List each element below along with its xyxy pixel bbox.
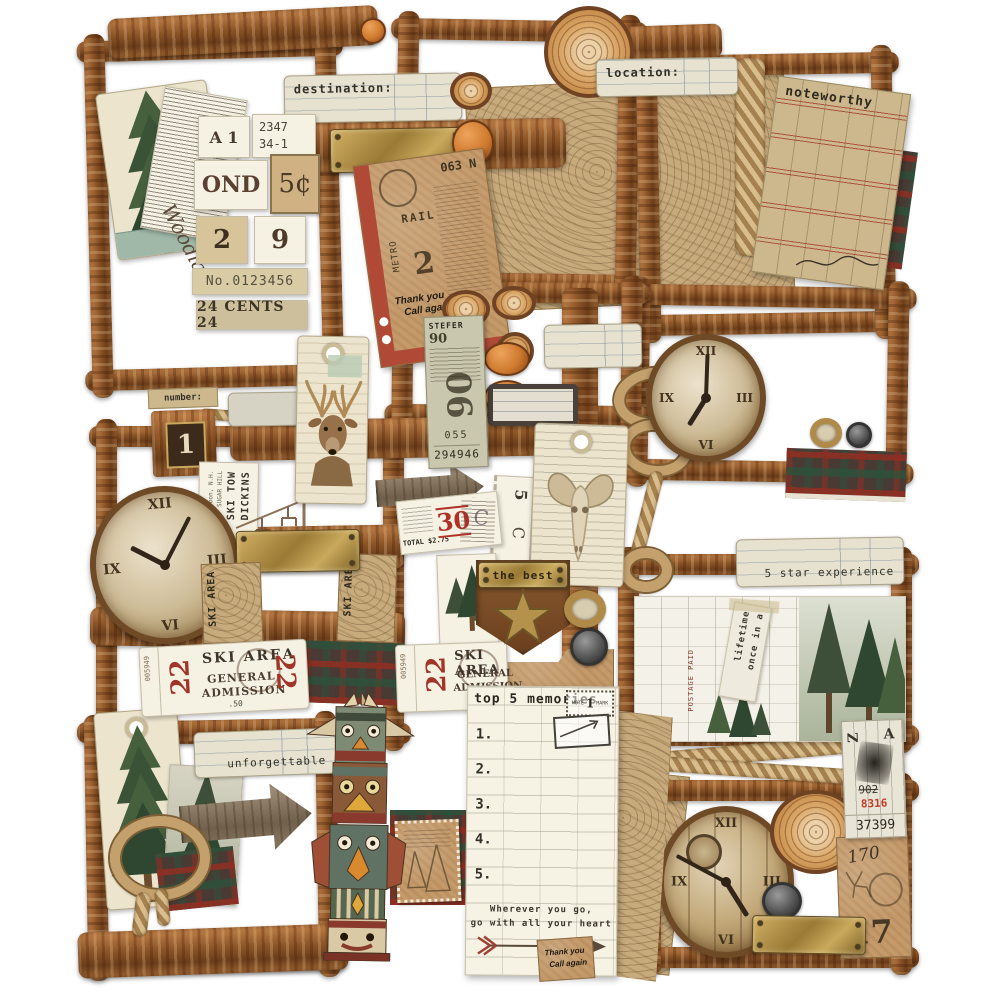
collage-canvas: Woodland A 1 2347 34-1 OND 5¢ 2 9 No.012… bbox=[0, 0, 1000, 1000]
blank-label-center bbox=[544, 323, 643, 369]
brass-plate-bottom-right bbox=[752, 915, 867, 955]
clock-left-numeral-6: VI bbox=[161, 617, 180, 634]
mini-thanks-line1: Thank you bbox=[544, 946, 585, 958]
stefer-big-number: 90 bbox=[440, 370, 482, 419]
brass-grommet bbox=[564, 590, 606, 628]
memo-row-4: 4. bbox=[475, 831, 492, 847]
five-cents-text: 5¢ bbox=[278, 169, 311, 199]
ski-price: .50 bbox=[228, 699, 243, 709]
wood-slice-small bbox=[450, 72, 492, 110]
stamp-a1: A 1 bbox=[198, 116, 250, 158]
memo-row-3: 3. bbox=[475, 796, 492, 812]
za-ink-blot bbox=[855, 741, 894, 785]
strip-5: 5 bbox=[511, 489, 531, 501]
ski2-22: 22 bbox=[421, 656, 452, 693]
signature-squiggle bbox=[790, 244, 883, 282]
za-serial: 37399 bbox=[845, 813, 906, 834]
numeral-left-text: 2 bbox=[213, 225, 231, 255]
clock-br-numeral-12: XII bbox=[715, 816, 737, 831]
deer-tag bbox=[295, 335, 370, 504]
stefer-sub: 90 bbox=[429, 331, 448, 347]
za-red-num: 8316 bbox=[861, 797, 888, 811]
stamp-ond-text: OND bbox=[202, 172, 260, 198]
clock-br-center-pin bbox=[721, 877, 731, 887]
ski-serial-left: 005949 bbox=[143, 656, 152, 682]
calendar-30-ticket: TOTAL $2.75 30 C bbox=[395, 491, 502, 555]
thank-you-mini-ticket: Thank you Call again bbox=[537, 936, 596, 982]
noteworthy-ledger-card: noteworthy bbox=[751, 76, 911, 291]
memo-quote-line2: go with all your heart bbox=[466, 918, 616, 929]
five-star-text: 5 star experience bbox=[764, 565, 894, 580]
memo-row-1: 1. bbox=[476, 726, 493, 742]
wood-knob-pair-top bbox=[484, 342, 530, 376]
mini-thanks-line2: Call again bbox=[549, 958, 587, 970]
clock-middle: XII III VI IX bbox=[646, 334, 766, 462]
ski-22-left: 22 bbox=[165, 658, 197, 696]
brass-star-icon bbox=[493, 588, 553, 646]
stamp-numeral-left: 2 bbox=[196, 216, 248, 264]
postage-paid-text: POSTAGE PAID bbox=[687, 649, 695, 712]
location-label: location: bbox=[596, 57, 739, 97]
wood-knob bbox=[360, 18, 386, 44]
small-dark-button-right bbox=[846, 422, 872, 448]
ski-serial-right: 005949 bbox=[399, 654, 408, 680]
ski-ticket-left-band: 005949 bbox=[139, 647, 162, 716]
k17-script: 170 bbox=[846, 843, 881, 868]
plaid-book-right bbox=[785, 448, 907, 502]
clock-br-numeral-6: VI bbox=[718, 933, 734, 948]
stamp-route-number: 2347 34-1 bbox=[252, 114, 316, 158]
ski-admission-ticket-left: 005949 22 SKI AREA GENERAL ADMISSION .50… bbox=[138, 639, 309, 718]
rail-big-number: 2 bbox=[411, 245, 437, 283]
clock-mid-numeral-6: VI bbox=[699, 438, 714, 452]
frame-log bbox=[83, 34, 114, 398]
memo-row-5: 5. bbox=[475, 866, 492, 882]
number-mini-sign-text: number: bbox=[164, 392, 202, 403]
ski-area-map-card-left: SKI AREA bbox=[201, 562, 264, 644]
clock-left-minute-hand bbox=[163, 516, 191, 566]
ticket30-cancel-stamp bbox=[460, 497, 496, 542]
ski-22-right: 22 bbox=[269, 653, 301, 691]
za-a: A bbox=[883, 726, 894, 742]
number-mini-sign: number: bbox=[148, 387, 219, 409]
rope-knot-right bbox=[620, 548, 672, 592]
clock-br-numeral-9: IX bbox=[671, 875, 687, 890]
the-best-pennant: the best bbox=[476, 560, 570, 655]
rail-word: RAIL bbox=[400, 208, 436, 226]
clock-left-numeral-9: IX bbox=[103, 561, 122, 578]
memo-stamp: NOTE 1 MARK bbox=[566, 690, 614, 716]
stamp-numeral-right: 9 bbox=[254, 216, 306, 264]
stefer-serial: 294946 bbox=[434, 444, 480, 462]
stamp-five-cents: 5¢ bbox=[270, 154, 320, 214]
memo-stamp-num: 1 bbox=[586, 696, 594, 710]
rail-fine-print bbox=[433, 180, 492, 295]
za-transit-ticket: Z A 902 8316 37399 bbox=[841, 719, 907, 839]
stefer-head: STEFER bbox=[429, 321, 464, 331]
stamp-24-cents: 24 CENTS 24 bbox=[196, 300, 308, 330]
stamp-woodland-letters: OND bbox=[194, 160, 268, 210]
memo-quote-line1: Wherever you go, bbox=[466, 904, 616, 915]
serial-number-text: No.0123456 bbox=[206, 274, 294, 289]
number-block-numeral: 1 bbox=[177, 430, 196, 461]
totem-pole bbox=[302, 692, 417, 962]
clock-left-numeral-12: XII bbox=[147, 495, 172, 513]
memo-arrow-stamp bbox=[553, 714, 611, 749]
small-grommet-right bbox=[810, 418, 842, 448]
memo-stamp-right: MARK bbox=[596, 700, 608, 706]
stamp-serial-number: No.0123456 bbox=[192, 268, 308, 295]
the-best-text: the best bbox=[493, 569, 554, 582]
stefer-ticket: STEFER 90 90 055 294946 bbox=[423, 315, 488, 469]
memo-row-2: 2. bbox=[475, 761, 492, 777]
cents-text: 24 CENTS 24 bbox=[197, 299, 307, 331]
destination-label-text: destination: bbox=[294, 81, 393, 97]
k17-cancel bbox=[868, 872, 903, 907]
tape-piece bbox=[729, 598, 780, 613]
stamp-a1-text: A 1 bbox=[209, 128, 238, 147]
clock-mid-center-pin bbox=[701, 393, 711, 403]
the-best-plate: the best bbox=[478, 562, 568, 588]
strip-c: C bbox=[508, 526, 528, 539]
clock-mid-minute-hand bbox=[704, 354, 710, 398]
five-star-label: 5 star experience bbox=[736, 537, 905, 588]
ticket30-fine-print bbox=[401, 505, 434, 534]
route-line1: 2347 bbox=[259, 119, 309, 136]
dickins-line3: SUGAR HILL bbox=[216, 471, 224, 507]
rail-top-number: 063 N bbox=[439, 156, 477, 175]
clock-mid-numeral-9: IX bbox=[659, 391, 674, 405]
clock-mid-numeral-3: III bbox=[736, 391, 753, 405]
metal-label-holder bbox=[488, 384, 578, 426]
za-num: 902 bbox=[858, 783, 878, 797]
rail-metro: METRO bbox=[388, 240, 402, 273]
memo-arrow-stamp-icon bbox=[555, 716, 604, 743]
deer-illustration bbox=[297, 370, 369, 491]
ski-area-vertical-text: SKI AREA bbox=[206, 571, 219, 628]
location-label-text: location: bbox=[606, 65, 680, 80]
noteworthy-title: noteworthy bbox=[784, 84, 874, 111]
dark-button bbox=[570, 628, 608, 666]
numeral-right-text: 9 bbox=[271, 225, 289, 255]
top5-memories-list: top 5 memories NOTE 1 MARK 1. 2. 3. 4. 5… bbox=[465, 685, 620, 976]
memo-stamp-left: NOTE bbox=[572, 700, 584, 706]
route-line2: 34-1 bbox=[259, 136, 309, 153]
wood-slice-center-2 bbox=[492, 286, 536, 320]
clock-left-center-pin bbox=[160, 560, 171, 571]
rail-postmark bbox=[376, 167, 419, 210]
moose-tag-hole bbox=[570, 431, 593, 454]
stefer-small-number: 055 bbox=[444, 430, 468, 442]
moose-skull-illustration bbox=[536, 452, 624, 575]
